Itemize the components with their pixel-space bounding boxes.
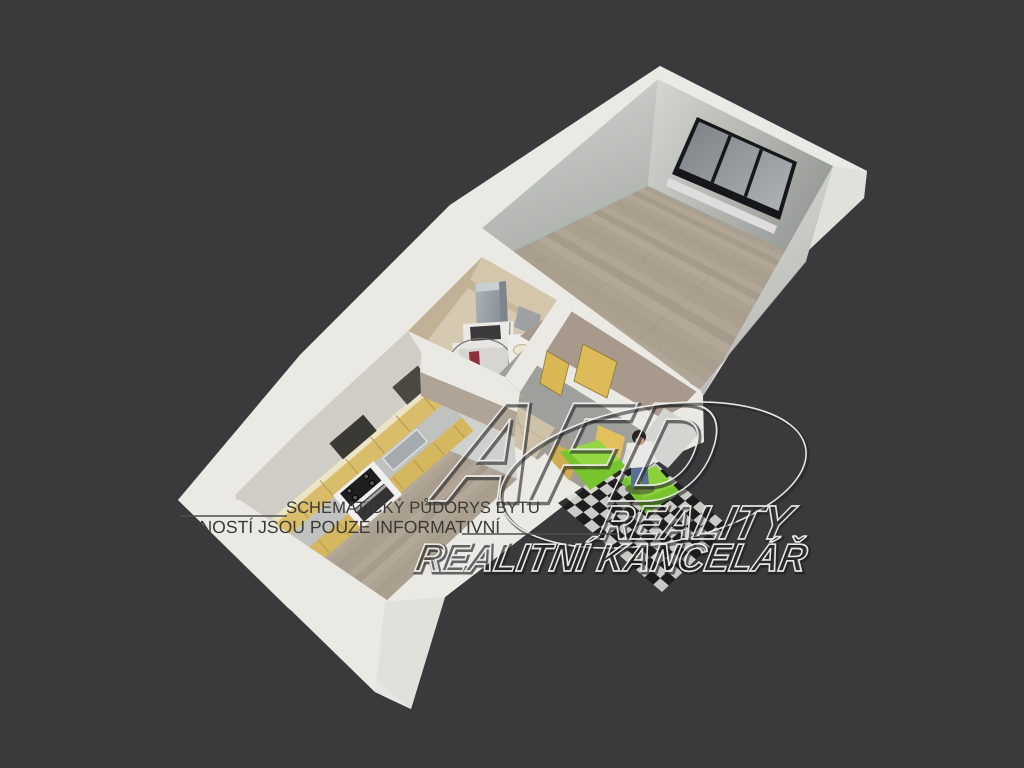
svg-text:REALITNÍ KANCELÁŘ: REALITNÍ KANCELÁŘ [412,536,811,580]
svg-text:(VÝMĚRY MÍSTNOSTÍ JSOU POUZE I: (VÝMĚRY MÍSTNOSTÍ JSOU POUZE INFORMATIVN… [73,517,500,537]
svg-text:SCHEMATICKÝ PŮDORYS BYTU: SCHEMATICKÝ PŮDORYS BYTU [286,497,540,517]
